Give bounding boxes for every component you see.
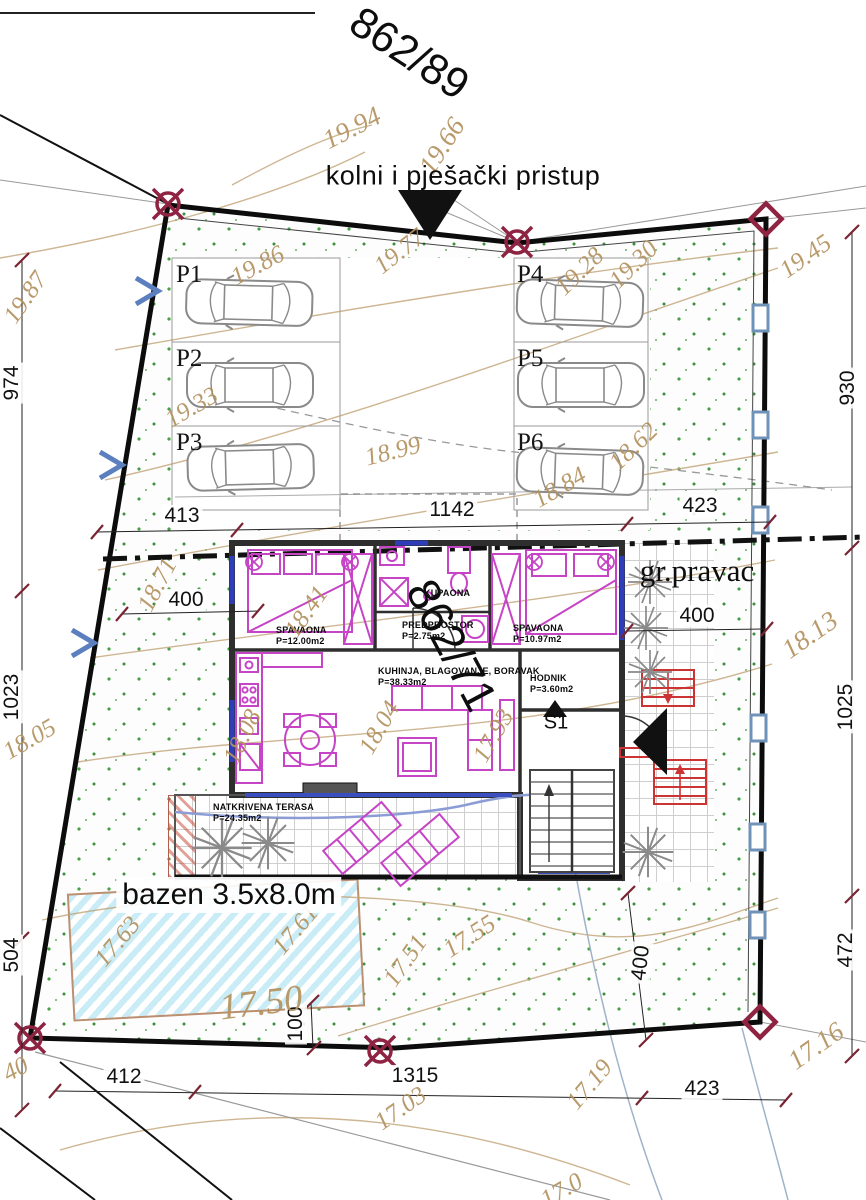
dimension-label: 423 — [681, 1078, 722, 1100]
gr-pravac-label: gr.pravac — [640, 553, 754, 589]
dimension-label: 400 — [165, 589, 206, 611]
dimension-label: 1025 — [835, 681, 857, 734]
entrance-arrow-icon — [633, 708, 667, 775]
parking-spot-label: P3 — [176, 429, 202, 457]
parking-spot-label: P5 — [517, 345, 543, 373]
dimension-label: 1142 — [426, 499, 477, 521]
room-label: SPAVAONAP=10.97m2 — [513, 623, 564, 646]
parking-spot-label: P6 — [517, 429, 543, 457]
dimension-label: 1023 — [1, 671, 23, 724]
interior-stairs — [530, 770, 614, 872]
dimension-label: 423 — [679, 495, 720, 517]
pool-label: bazen 3.5x8.0m — [116, 877, 341, 913]
parking-spot-label: P1 — [176, 261, 202, 289]
room-label: NATKRIVENA TERASAP=24.35m2 — [213, 802, 314, 825]
dimension-label: 413 — [161, 505, 202, 527]
dimension-label: 412 — [103, 1066, 144, 1088]
contour-lines — [0, 125, 778, 1185]
dimension-label: 400 — [676, 605, 717, 627]
site-boundary — [30, 205, 766, 1048]
access-label: kolni i pješački pristup — [326, 161, 601, 192]
dimension-label: 472 — [835, 929, 857, 970]
dimension-label: 974 — [1, 362, 23, 403]
parking-spot-label: P4 — [517, 261, 543, 289]
parking-spot-label: P2 — [176, 345, 202, 373]
dimension-label: 504 — [1, 934, 23, 975]
site-plan-canvas: NATKRIVENA TERASAP=24.35m2HODNIKP=3.60m2… — [0, 0, 866, 1200]
stair-s1-label: S1 — [544, 712, 568, 735]
dimension-label: 930 — [837, 367, 859, 408]
